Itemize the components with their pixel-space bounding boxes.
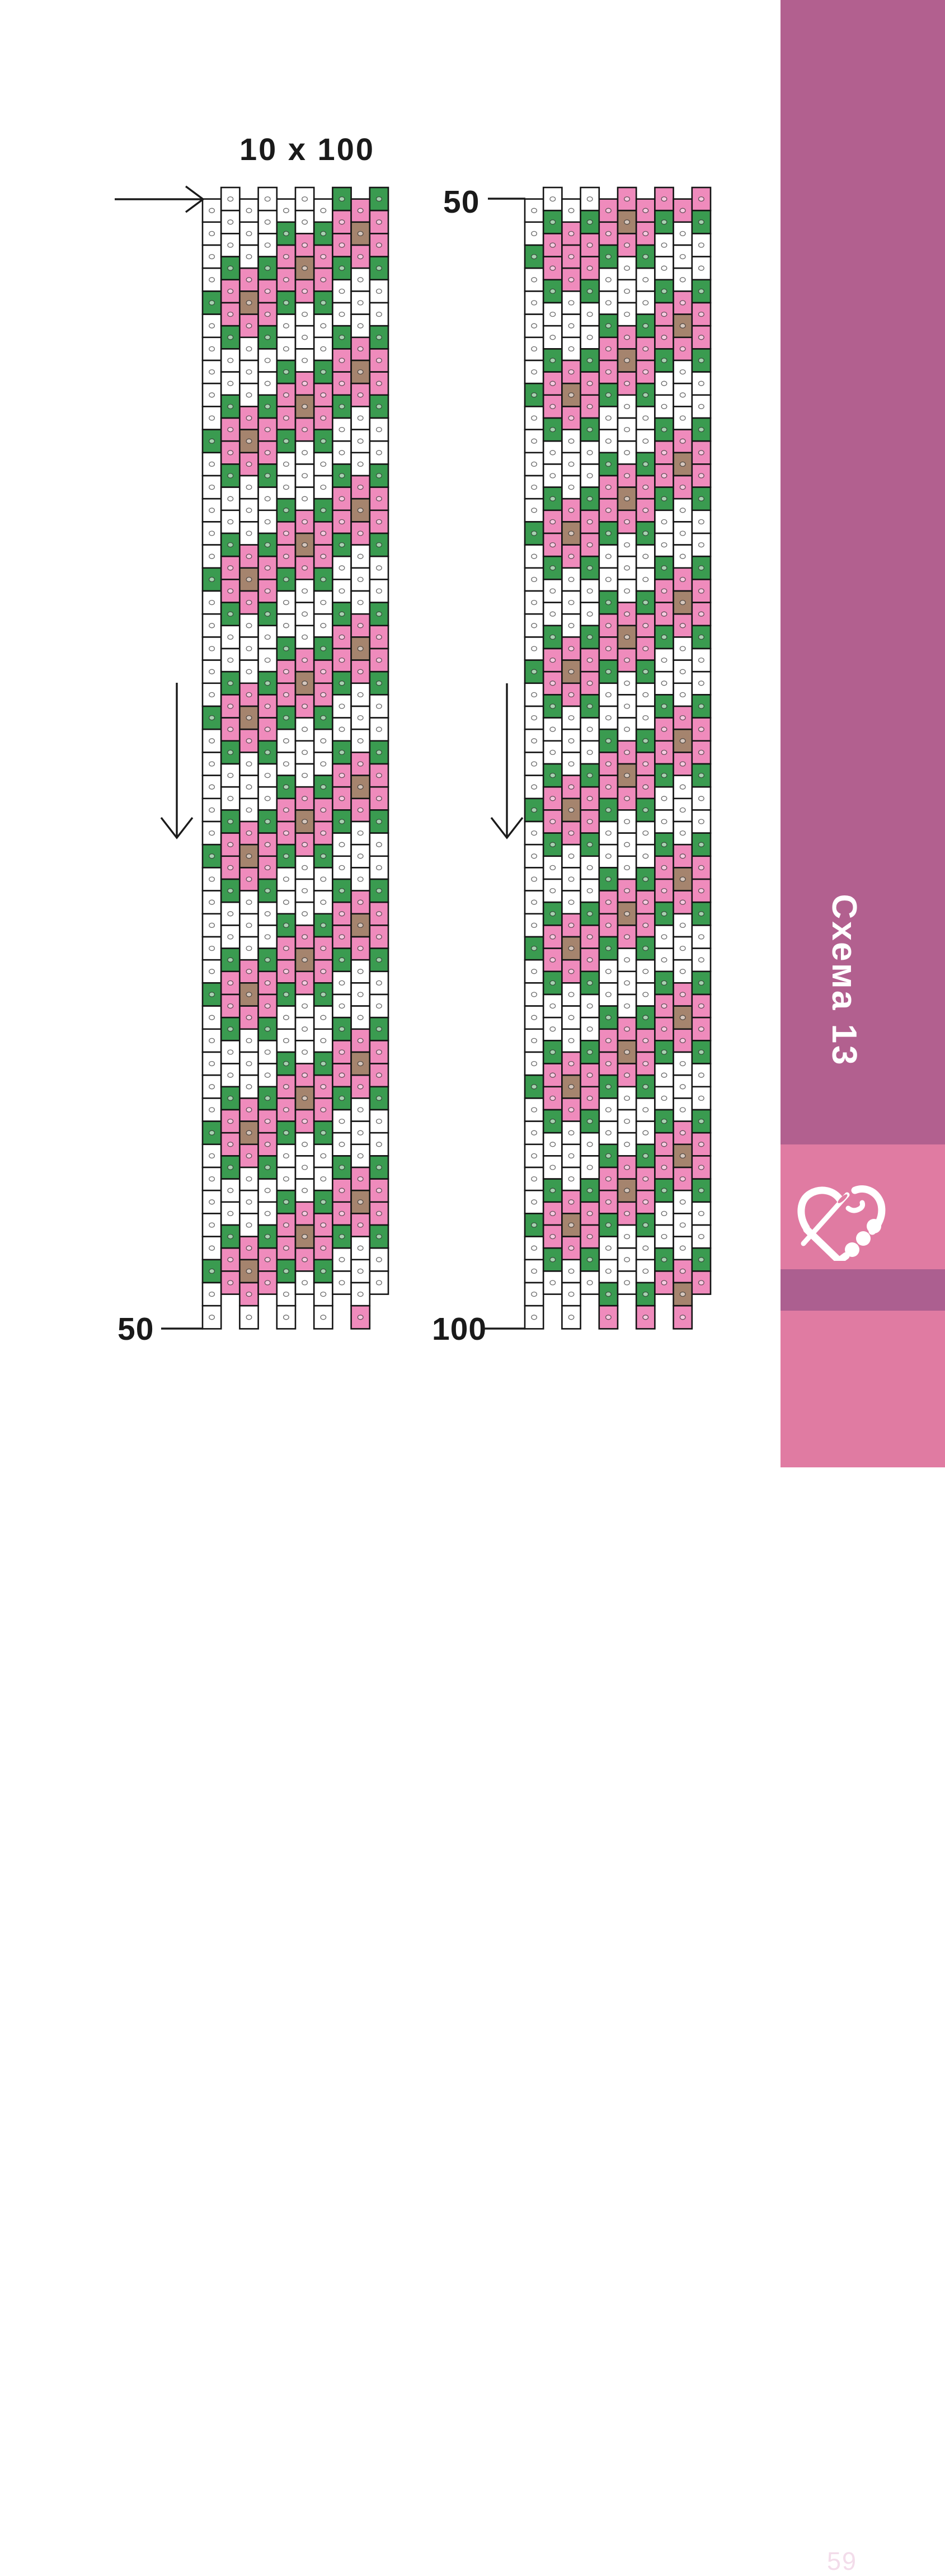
bead-hole-icon bbox=[209, 255, 215, 259]
bead-hole-icon bbox=[321, 1200, 326, 1204]
bead-hole-icon bbox=[568, 1038, 574, 1043]
bead-hole-icon bbox=[358, 393, 363, 397]
bead-hole-icon bbox=[568, 600, 574, 605]
bead-hole-icon bbox=[680, 877, 685, 881]
bead-hole-icon bbox=[377, 658, 382, 663]
bead-hole-icon bbox=[606, 370, 612, 374]
bead-hole-icon bbox=[265, 566, 270, 570]
bead-hole-icon bbox=[284, 1177, 289, 1181]
bead-hole-icon bbox=[587, 1235, 593, 1239]
bead-hole-icon bbox=[532, 393, 537, 397]
bead-hole-icon bbox=[643, 646, 648, 651]
bead-hole-icon bbox=[680, 600, 685, 605]
bead-hole-icon bbox=[321, 255, 326, 259]
bead-hole-icon bbox=[284, 623, 289, 628]
bead-hole-icon bbox=[606, 669, 612, 674]
bead-hole-icon bbox=[377, 566, 382, 570]
bead-hole-icon bbox=[680, 1223, 685, 1227]
bead-hole-icon bbox=[265, 704, 270, 708]
bead-hole-icon bbox=[606, 1315, 612, 1320]
bead-hole-icon bbox=[228, 381, 233, 386]
bead-hole-icon bbox=[377, 819, 382, 824]
bead-hole-icon bbox=[339, 335, 345, 340]
bead-hole-icon bbox=[550, 1165, 556, 1170]
bead-hole-icon bbox=[699, 1211, 704, 1216]
bead-hole-icon bbox=[643, 278, 648, 282]
bead-hole-icon bbox=[550, 1280, 556, 1285]
bead-hole-icon bbox=[302, 289, 308, 293]
bead-hole-icon bbox=[228, 220, 233, 224]
bead-hole-icon bbox=[643, 462, 648, 466]
bead-hole-icon bbox=[661, 197, 667, 201]
bead-hole-icon bbox=[339, 819, 345, 824]
bead-hole-icon bbox=[624, 1073, 630, 1077]
bead-hole-icon bbox=[246, 1269, 252, 1273]
bead-hole-icon bbox=[587, 243, 593, 247]
bead-hole-icon bbox=[246, 323, 252, 328]
bead-hole-icon bbox=[661, 704, 667, 708]
bead-hole-icon bbox=[358, 600, 363, 605]
bead-hole-icon bbox=[550, 519, 556, 524]
bead-hole-icon bbox=[265, 889, 270, 893]
bead-hole-icon bbox=[209, 1292, 215, 1297]
bead-hole-icon bbox=[246, 646, 252, 651]
bead-hole-icon bbox=[377, 519, 382, 524]
bead-hole-icon bbox=[550, 1257, 556, 1262]
bead-hole-icon bbox=[587, 658, 593, 663]
bead-hole-icon bbox=[550, 451, 556, 455]
bead-hole-icon bbox=[606, 439, 612, 443]
bead-hole-icon bbox=[661, 1165, 667, 1170]
bead-hole-icon bbox=[587, 865, 593, 870]
bead-hole-icon bbox=[699, 658, 704, 663]
bead-hole-icon bbox=[532, 346, 537, 351]
bead-hole-icon bbox=[680, 1038, 685, 1043]
bead-hole-icon bbox=[532, 370, 537, 374]
bead-hole-icon bbox=[680, 416, 685, 420]
bead-hole-icon bbox=[661, 589, 667, 593]
bead-hole-icon bbox=[699, 773, 704, 778]
bead-hole-icon bbox=[550, 889, 556, 893]
bead-hole-icon bbox=[209, 992, 215, 997]
bead-hole-icon bbox=[246, 877, 252, 881]
bead-hole-icon bbox=[265, 543, 270, 547]
bead-hole-icon bbox=[284, 900, 289, 904]
bead-hole-icon bbox=[377, 681, 382, 686]
bead-hole-icon bbox=[265, 1004, 270, 1008]
bead-hole-icon bbox=[699, 473, 704, 478]
bead-hole-icon bbox=[228, 658, 233, 663]
bead-hole-icon bbox=[587, 727, 593, 731]
bead-hole-icon bbox=[321, 278, 326, 282]
bead-hole-icon bbox=[321, 646, 326, 651]
bead-hole-icon bbox=[661, 543, 667, 547]
bead-hole-icon bbox=[209, 831, 215, 836]
bead-hole-icon bbox=[339, 496, 345, 501]
bead-hole-icon bbox=[661, 266, 667, 270]
bead-hole-icon bbox=[643, 301, 648, 305]
bead-hole-icon bbox=[228, 1235, 233, 1239]
bead-hole-icon bbox=[339, 220, 345, 224]
bead-hole-icon bbox=[680, 1015, 685, 1020]
bead-hole-icon bbox=[587, 473, 593, 478]
bead-hole-icon bbox=[624, 428, 630, 432]
bead-hole-icon bbox=[302, 566, 308, 570]
bead-hole-icon bbox=[284, 1062, 289, 1066]
bead-hole-icon bbox=[643, 1246, 648, 1250]
bead-hole-icon bbox=[550, 496, 556, 501]
bead-hole-icon bbox=[587, 543, 593, 547]
bead-hole-icon bbox=[321, 854, 326, 858]
bead-hole-icon bbox=[377, 1280, 382, 1285]
bead-hole-icon bbox=[209, 1153, 215, 1158]
bead-hole-icon bbox=[339, 935, 345, 939]
bead-hole-icon bbox=[587, 266, 593, 270]
bead-hole-icon bbox=[661, 381, 667, 386]
bead-hole-icon bbox=[680, 485, 685, 490]
bead-hole-icon bbox=[377, 1165, 382, 1170]
bead-hole-icon bbox=[680, 785, 685, 789]
bead-hole-icon bbox=[302, 704, 308, 708]
bead-hole-icon bbox=[302, 1027, 308, 1031]
bead-hole-icon bbox=[532, 416, 537, 420]
bead-hole-icon bbox=[587, 842, 593, 847]
bead-hole-icon bbox=[321, 393, 326, 397]
bead-hole-icon bbox=[699, 1050, 704, 1054]
bead-hole-icon bbox=[284, 669, 289, 674]
bead-hole-icon bbox=[606, 739, 612, 743]
bead-hole-icon bbox=[339, 773, 345, 778]
bead-hole-icon bbox=[228, 1096, 233, 1100]
bead-hole-icon bbox=[587, 912, 593, 916]
bead-hole-icon bbox=[339, 566, 345, 570]
bead-hole-icon bbox=[606, 508, 612, 513]
bead-hole-icon bbox=[568, 531, 574, 536]
bead-hole-icon bbox=[321, 1108, 326, 1112]
bead-hole-icon bbox=[284, 301, 289, 305]
bead-hole-icon bbox=[246, 439, 252, 443]
bead-hole-icon bbox=[680, 900, 685, 904]
bead-hole-icon bbox=[550, 335, 556, 340]
bead-hole-icon bbox=[643, 231, 648, 236]
bead-hole-icon bbox=[643, 1130, 648, 1135]
bead-hole-icon bbox=[302, 312, 308, 317]
bead-hole-icon bbox=[246, 946, 252, 951]
bead-hole-icon bbox=[339, 704, 345, 708]
bead-hole-icon bbox=[228, 889, 233, 893]
bead-hole-icon bbox=[606, 1108, 612, 1112]
bead-hole-icon bbox=[568, 992, 574, 997]
bead-hole-icon bbox=[246, 1015, 252, 1020]
bead-hole-icon bbox=[228, 473, 233, 478]
bead-hole-icon bbox=[321, 1062, 326, 1066]
bead-hole-icon bbox=[606, 900, 612, 904]
bead-hole-icon bbox=[606, 1246, 612, 1250]
bead-hole-icon bbox=[321, 600, 326, 605]
bead-hole-icon bbox=[339, 543, 345, 547]
bead-hole-icon bbox=[568, 577, 574, 581]
bead-hole-icon bbox=[587, 335, 593, 340]
bead-hole-icon bbox=[643, 1153, 648, 1158]
bead-hole-icon bbox=[302, 1096, 308, 1100]
bead-hole-icon bbox=[246, 739, 252, 743]
bead-hole-icon bbox=[228, 1188, 233, 1193]
bead-hole-icon bbox=[228, 243, 233, 247]
bead-hole-icon bbox=[339, 958, 345, 962]
bead-hole-icon bbox=[606, 1177, 612, 1181]
bead-hole-icon bbox=[377, 842, 382, 847]
bead-hole-icon bbox=[209, 462, 215, 466]
bead-hole-icon bbox=[606, 1292, 612, 1297]
bead-hole-icon bbox=[265, 750, 270, 754]
bead-hole-icon bbox=[377, 1004, 382, 1008]
bead-hole-icon bbox=[643, 854, 648, 858]
bead-hole-icon bbox=[680, 1315, 685, 1320]
bead-hole-icon bbox=[643, 393, 648, 397]
bead-hole-icon bbox=[321, 554, 326, 559]
bead-hole-icon bbox=[358, 1015, 363, 1020]
bead-hole-icon bbox=[321, 692, 326, 697]
bead-hole-icon bbox=[265, 473, 270, 478]
bead-hole-icon bbox=[228, 681, 233, 686]
bead-hole-icon bbox=[358, 1153, 363, 1158]
bead-hole-icon bbox=[321, 1153, 326, 1158]
bead-hole-icon bbox=[246, 623, 252, 628]
bead-hole-icon bbox=[228, 566, 233, 570]
bead-hole-icon bbox=[228, 428, 233, 432]
bead-hole-icon bbox=[246, 393, 252, 397]
bead-hole-icon bbox=[532, 301, 537, 305]
bead-hole-icon bbox=[265, 312, 270, 317]
bead-hole-icon bbox=[377, 496, 382, 501]
bead-hole-icon bbox=[643, 1315, 648, 1320]
bead-hole-icon bbox=[358, 692, 363, 697]
bead-hole-icon bbox=[209, 301, 215, 305]
bead-hole-icon bbox=[377, 1096, 382, 1100]
bead-hole-icon bbox=[606, 462, 612, 466]
bead-hole-icon bbox=[661, 681, 667, 686]
bead-hole-icon bbox=[568, 923, 574, 927]
bead-hole-icon bbox=[284, 1223, 289, 1227]
bead-hole-icon bbox=[568, 969, 574, 974]
bead-hole-icon bbox=[302, 612, 308, 616]
bead-hole-icon bbox=[550, 980, 556, 985]
bead-hole-icon bbox=[321, 508, 326, 513]
bead-hole-icon bbox=[532, 623, 537, 628]
bead-hole-icon bbox=[680, 739, 685, 743]
bead-hole-icon bbox=[377, 473, 382, 478]
bead-hole-icon bbox=[661, 658, 667, 663]
bead-hole-icon bbox=[550, 958, 556, 962]
bead-hole-icon bbox=[377, 381, 382, 386]
bead-hole-icon bbox=[228, 358, 233, 363]
bead-hole-icon bbox=[377, 358, 382, 363]
bead-hole-icon bbox=[606, 600, 612, 605]
bead-hole-icon bbox=[284, 1153, 289, 1158]
bead-hole-icon bbox=[209, 692, 215, 697]
bead-hole-icon bbox=[246, 462, 252, 466]
bead-hole-icon bbox=[209, 577, 215, 581]
bead-hole-icon bbox=[321, 370, 326, 374]
bead-hole-icon bbox=[550, 1211, 556, 1216]
bead-hole-icon bbox=[246, 231, 252, 236]
bead-hole-icon bbox=[358, 255, 363, 259]
bead-hole-icon bbox=[532, 255, 537, 259]
bead-hole-icon bbox=[358, 623, 363, 628]
bead-hole-icon bbox=[377, 1027, 382, 1031]
bead-hole-icon bbox=[606, 1038, 612, 1043]
bead-hole-icon bbox=[587, 704, 593, 708]
bead-hole-icon bbox=[321, 923, 326, 927]
bead-hole-icon bbox=[699, 197, 704, 201]
bead-hole-icon bbox=[532, 762, 537, 766]
bead-hole-icon bbox=[284, 808, 289, 812]
bead-hole-icon bbox=[209, 785, 215, 789]
bead-hole-icon bbox=[680, 255, 685, 259]
bead-hole-icon bbox=[209, 716, 215, 720]
bead-hole-icon bbox=[302, 381, 308, 386]
bead-hole-icon bbox=[587, 958, 593, 962]
bead-hole-icon bbox=[550, 1235, 556, 1239]
bead-hole-icon bbox=[661, 1142, 667, 1147]
page-number: 59 bbox=[820, 2547, 864, 2576]
bead-hole-icon bbox=[568, 900, 574, 904]
bead-hole-icon bbox=[321, 577, 326, 581]
bead-hole-icon bbox=[339, 1235, 345, 1239]
bead-hole-icon bbox=[661, 566, 667, 570]
bead-hole-icon bbox=[699, 266, 704, 270]
bead-hole-icon bbox=[246, 716, 252, 720]
bead-hole-icon bbox=[302, 1073, 308, 1077]
bead-hole-icon bbox=[228, 980, 233, 985]
bead-hole-icon bbox=[228, 912, 233, 916]
bead-hole-icon bbox=[209, 370, 215, 374]
bead-hole-icon bbox=[302, 266, 308, 270]
bead-hole-icon bbox=[265, 266, 270, 270]
bead-hole-icon bbox=[339, 358, 345, 363]
bead-hole-icon bbox=[209, 393, 215, 397]
bead-hole-icon bbox=[624, 335, 630, 340]
bead-hole-icon bbox=[680, 831, 685, 836]
bead-hole-icon bbox=[606, 785, 612, 789]
bead-hole-icon bbox=[358, 1177, 363, 1181]
bead-hole-icon bbox=[699, 1027, 704, 1031]
bead-hole-icon bbox=[680, 301, 685, 305]
bead-hole-icon bbox=[643, 992, 648, 997]
bead-hole-icon bbox=[265, 912, 270, 916]
bead-hole-icon bbox=[532, 485, 537, 490]
bead-hole-icon bbox=[661, 1188, 667, 1193]
bead-hole-icon bbox=[284, 554, 289, 559]
bead-hole-icon bbox=[624, 635, 630, 639]
bead-hole-icon bbox=[587, 819, 593, 824]
bead-hole-icon bbox=[680, 554, 685, 559]
bead-hole-icon bbox=[339, 1096, 345, 1100]
bead-hole-icon bbox=[568, 1246, 574, 1250]
bead-hole-icon bbox=[321, 716, 326, 720]
bead-hole-icon bbox=[339, 865, 345, 870]
bead-hole-icon bbox=[377, 543, 382, 547]
bead-hole-icon bbox=[302, 773, 308, 778]
bead-hole-icon bbox=[587, 566, 593, 570]
bead-hole-icon bbox=[606, 692, 612, 697]
bead-hole-icon bbox=[643, 762, 648, 766]
bead-hole-icon bbox=[532, 1153, 537, 1158]
bead-hole-icon bbox=[550, 381, 556, 386]
bead-hole-icon bbox=[661, 842, 667, 847]
bead-hole-icon bbox=[661, 1119, 667, 1124]
bead-hole-icon bbox=[643, 1223, 648, 1227]
bead-hole-icon bbox=[568, 1315, 574, 1320]
bead-hole-icon bbox=[606, 1269, 612, 1273]
bead-hole-icon bbox=[302, 589, 308, 593]
bead-hole-icon bbox=[587, 404, 593, 409]
bead-hole-icon bbox=[606, 762, 612, 766]
bead-hole-icon bbox=[699, 1257, 704, 1262]
bead-hole-icon bbox=[550, 289, 556, 293]
bead-hole-icon bbox=[377, 1119, 382, 1124]
bead-hole-icon bbox=[568, 646, 574, 651]
bead-hole-icon bbox=[661, 473, 667, 478]
bead-hole-icon bbox=[532, 323, 537, 328]
bead-hole-icon bbox=[643, 1108, 648, 1112]
bead-hole-icon bbox=[624, 266, 630, 270]
bead-hole-icon bbox=[643, 508, 648, 513]
bead-hole-icon bbox=[358, 785, 363, 789]
bead-hole-icon bbox=[339, 1027, 345, 1031]
bead-hole-icon bbox=[339, 1142, 345, 1147]
bead-hole-icon bbox=[699, 727, 704, 731]
bead-hole-icon bbox=[284, 439, 289, 443]
bead-hole-icon bbox=[532, 1200, 537, 1204]
bead-hole-icon bbox=[284, 255, 289, 259]
bead-hole-icon bbox=[284, 1085, 289, 1089]
bead-hole-icon bbox=[587, 381, 593, 386]
bead-hole-icon bbox=[699, 1073, 704, 1077]
bead-hole-icon bbox=[643, 255, 648, 259]
bead-hole-icon bbox=[661, 496, 667, 501]
bead-hole-icon bbox=[699, 428, 704, 432]
bead-hole-icon bbox=[532, 462, 537, 466]
bead-hole-icon bbox=[624, 658, 630, 663]
bead-hole-icon bbox=[699, 1004, 704, 1008]
bead-hole-icon bbox=[680, 370, 685, 374]
bead-hole-icon bbox=[550, 1096, 556, 1100]
bead-hole-icon bbox=[643, 946, 648, 951]
bead-hole-icon bbox=[321, 762, 326, 766]
bead-hole-icon bbox=[606, 346, 612, 351]
bead-hole-icon bbox=[643, 1177, 648, 1181]
bead-hole-icon bbox=[284, 1269, 289, 1273]
bead-hole-icon bbox=[358, 462, 363, 466]
bead-hole-icon bbox=[643, 692, 648, 697]
bead-hole-icon bbox=[699, 612, 704, 616]
bead-hole-icon bbox=[358, 323, 363, 328]
bead-hole-icon bbox=[643, 208, 648, 213]
bead-hole-icon bbox=[302, 958, 308, 962]
bead-hole-icon bbox=[209, 531, 215, 536]
bead-hole-icon bbox=[228, 451, 233, 455]
bead-hole-icon bbox=[321, 1246, 326, 1250]
bead-hole-icon bbox=[265, 1235, 270, 1239]
bead-hole-icon bbox=[209, 1015, 215, 1020]
bead-hole-icon bbox=[358, 1292, 363, 1297]
bead-hole-icon bbox=[358, 346, 363, 351]
bead-hole-icon bbox=[246, 762, 252, 766]
bead-hole-icon bbox=[699, 358, 704, 363]
bead-hole-icon bbox=[302, 980, 308, 985]
sidebar-schema-title: Схема 13 bbox=[821, 863, 866, 1098]
